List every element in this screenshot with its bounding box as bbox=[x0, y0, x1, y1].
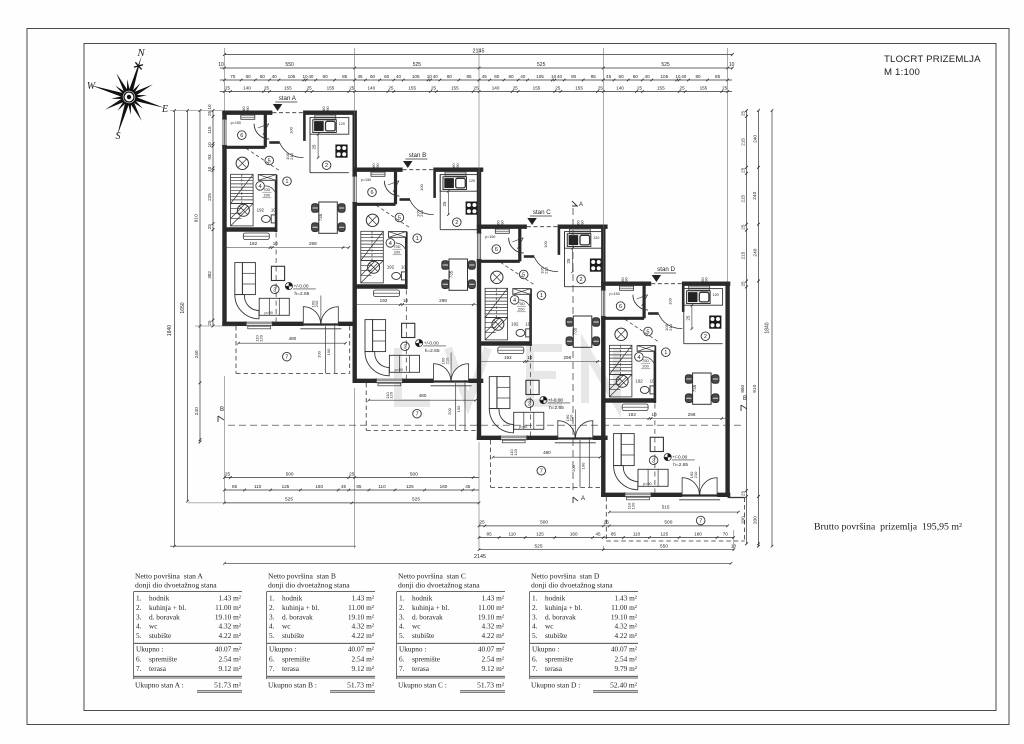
svg-text:60: 60 bbox=[619, 74, 625, 79]
svg-text:9.12 m²: 9.12 m² bbox=[352, 664, 375, 673]
svg-text:200: 200 bbox=[317, 350, 322, 357]
svg-text:155: 155 bbox=[700, 86, 708, 91]
svg-text:h=2.65: h=2.65 bbox=[673, 462, 688, 468]
svg-text:500: 500 bbox=[410, 471, 418, 477]
svg-text:1.43 m²: 1.43 m² bbox=[482, 594, 505, 603]
svg-text:125: 125 bbox=[406, 484, 414, 489]
svg-text:480: 480 bbox=[419, 393, 427, 398]
svg-text:2: 2 bbox=[580, 277, 583, 283]
svg-text:100: 100 bbox=[419, 183, 424, 190]
svg-text:wc: wc bbox=[545, 622, 554, 631]
svg-text:h=2.65: h=2.65 bbox=[425, 348, 440, 354]
svg-text:525: 525 bbox=[412, 497, 420, 503]
svg-text:1.: 1. bbox=[136, 594, 142, 603]
svg-text:25: 25 bbox=[722, 86, 728, 91]
svg-text:225: 225 bbox=[207, 193, 212, 201]
svg-text:120: 120 bbox=[593, 236, 599, 240]
svg-text:190: 190 bbox=[580, 462, 585, 469]
svg-text:2.: 2. bbox=[269, 603, 275, 612]
svg-text:192: 192 bbox=[635, 378, 643, 383]
svg-text:2.54 m²: 2.54 m² bbox=[219, 655, 242, 664]
svg-text:25: 25 bbox=[740, 224, 745, 230]
svg-text:Netto površina stan D: Netto površina stan D bbox=[531, 572, 600, 581]
svg-text:d. boravak: d. boravak bbox=[545, 612, 576, 621]
svg-text:4.32 m²: 4.32 m² bbox=[219, 622, 242, 631]
svg-text:140: 140 bbox=[616, 86, 624, 91]
svg-text:240: 240 bbox=[194, 407, 200, 415]
svg-text:B: B bbox=[743, 396, 747, 402]
svg-text:110: 110 bbox=[254, 484, 262, 489]
svg-text:6.: 6. bbox=[269, 655, 275, 664]
svg-text:2: 2 bbox=[704, 334, 707, 340]
svg-text:40: 40 bbox=[308, 74, 314, 79]
svg-text:298: 298 bbox=[688, 412, 696, 417]
svg-text:9.12 m²: 9.12 m² bbox=[219, 664, 242, 673]
svg-text:60: 60 bbox=[633, 74, 639, 79]
svg-text:45: 45 bbox=[595, 531, 601, 536]
svg-text:5.: 5. bbox=[399, 631, 405, 640]
svg-text:spremište: spremište bbox=[412, 655, 440, 664]
svg-text:A: A bbox=[579, 202, 583, 208]
svg-text:140: 140 bbox=[492, 86, 500, 91]
svg-text:210: 210 bbox=[693, 471, 698, 478]
svg-text:6.: 6. bbox=[532, 655, 538, 664]
svg-text:210: 210 bbox=[444, 357, 449, 364]
svg-text:5: 5 bbox=[268, 159, 271, 165]
svg-text:85: 85 bbox=[466, 74, 472, 79]
svg-text:210: 210 bbox=[668, 323, 673, 330]
svg-text:45: 45 bbox=[341, 484, 347, 489]
svg-text:160: 160 bbox=[694, 531, 702, 536]
svg-text:11.00 m²: 11.00 m² bbox=[478, 603, 505, 612]
svg-text:6: 6 bbox=[240, 133, 243, 139]
svg-text:60: 60 bbox=[508, 74, 514, 79]
svg-text:70: 70 bbox=[723, 531, 729, 536]
svg-text:3.: 3. bbox=[532, 612, 538, 621]
svg-text:stubište: stubište bbox=[282, 631, 304, 640]
svg-text:2.54 m²: 2.54 m² bbox=[615, 655, 638, 664]
svg-text:2.: 2. bbox=[532, 603, 538, 612]
svg-text:80: 80 bbox=[323, 74, 329, 79]
svg-text:120: 120 bbox=[469, 179, 475, 183]
svg-text:70: 70 bbox=[230, 74, 236, 79]
svg-text:10: 10 bbox=[650, 378, 655, 383]
svg-text:2.: 2. bbox=[399, 603, 405, 612]
svg-text:M 1:100: M 1:100 bbox=[884, 67, 920, 78]
svg-text:85: 85 bbox=[342, 74, 348, 79]
svg-text:25: 25 bbox=[312, 144, 317, 149]
svg-text:10: 10 bbox=[207, 142, 212, 148]
svg-text:500: 500 bbox=[664, 520, 672, 526]
svg-text:3.: 3. bbox=[269, 612, 275, 621]
svg-text:500: 500 bbox=[540, 520, 548, 526]
svg-text:70D: 70D bbox=[642, 359, 649, 363]
svg-text:d. boravak: d. boravak bbox=[412, 612, 443, 621]
svg-text:Ukupno :: Ukupno : bbox=[136, 645, 163, 654]
svg-text:terasa: terasa bbox=[412, 664, 430, 673]
svg-text:19.10 m²: 19.10 m² bbox=[215, 612, 242, 621]
svg-text:11.00 m²: 11.00 m² bbox=[611, 603, 638, 612]
svg-text:192: 192 bbox=[257, 207, 265, 212]
svg-text:192: 192 bbox=[628, 412, 636, 417]
svg-text:910: 910 bbox=[752, 384, 758, 392]
svg-text:100: 100 bbox=[667, 297, 672, 304]
svg-text:10: 10 bbox=[675, 74, 681, 79]
svg-text:525: 525 bbox=[534, 544, 542, 550]
svg-text:Ukupno :: Ukupno : bbox=[532, 645, 559, 654]
svg-text:25: 25 bbox=[680, 86, 686, 91]
svg-text:4.: 4. bbox=[136, 622, 142, 631]
svg-text:215: 215 bbox=[740, 251, 745, 259]
svg-text:5: 5 bbox=[398, 216, 401, 222]
svg-text:60: 60 bbox=[384, 74, 390, 79]
svg-text:9.79 m²: 9.79 m² bbox=[615, 664, 638, 673]
svg-text:155: 155 bbox=[575, 86, 583, 91]
svg-text:Ukupno stan D :: Ukupno stan D : bbox=[531, 681, 580, 690]
svg-text:51.73 m²: 51.73 m² bbox=[477, 681, 505, 690]
svg-text:192: 192 bbox=[504, 355, 512, 360]
svg-text:25: 25 bbox=[307, 86, 313, 91]
svg-text:93: 93 bbox=[207, 154, 212, 160]
svg-text:110: 110 bbox=[509, 531, 517, 536]
svg-text:4.32 m²: 4.32 m² bbox=[615, 622, 638, 631]
svg-text:Brutto površina prizemlja 19: Brutto površina prizemlja 195,95 m² bbox=[814, 522, 962, 533]
svg-text:25: 25 bbox=[431, 86, 437, 91]
svg-text:51.73 m²: 51.73 m² bbox=[347, 681, 375, 690]
svg-text:TLOCRT PRIZEMLJA: TLOCRT PRIZEMLJA bbox=[884, 54, 981, 65]
svg-text:190: 190 bbox=[456, 405, 461, 412]
svg-text:45: 45 bbox=[357, 74, 363, 79]
svg-text:kuhinja + bl.: kuhinja + bl. bbox=[545, 603, 582, 612]
svg-text:40.07 m²: 40.07 m² bbox=[348, 645, 375, 654]
svg-text:85: 85 bbox=[611, 531, 617, 536]
svg-text:p=90: p=90 bbox=[395, 368, 403, 372]
svg-text:25: 25 bbox=[264, 86, 270, 91]
svg-text:210: 210 bbox=[544, 266, 549, 273]
svg-text:200: 200 bbox=[394, 251, 400, 255]
svg-text:3.: 3. bbox=[136, 612, 142, 621]
svg-text:4.32 m²: 4.32 m² bbox=[352, 622, 375, 631]
svg-text:25: 25 bbox=[474, 86, 480, 91]
svg-text:382: 382 bbox=[207, 271, 212, 279]
svg-text:192: 192 bbox=[511, 321, 519, 326]
svg-text:210: 210 bbox=[419, 209, 424, 216]
svg-text:40.07 m²: 40.07 m² bbox=[478, 645, 505, 654]
svg-text:210: 210 bbox=[314, 300, 319, 307]
svg-text:Netto površina stan B: Netto površina stan B bbox=[268, 572, 336, 581]
svg-text:2.: 2. bbox=[136, 603, 142, 612]
svg-text:stan C: stan C bbox=[533, 209, 551, 216]
svg-text:525: 525 bbox=[413, 62, 422, 68]
svg-text:stubište: stubište bbox=[149, 631, 171, 640]
svg-text:2145: 2145 bbox=[474, 554, 486, 560]
svg-text:4.: 4. bbox=[399, 622, 405, 631]
svg-text:hodnik: hodnik bbox=[412, 594, 433, 603]
svg-text:2: 2 bbox=[455, 220, 458, 226]
svg-text:terasa: terasa bbox=[545, 664, 563, 673]
svg-text:Ukupno stan C :: Ukupno stan C : bbox=[398, 681, 447, 690]
svg-text:735: 735 bbox=[448, 270, 453, 278]
svg-text:10: 10 bbox=[527, 355, 533, 360]
svg-text:40: 40 bbox=[433, 74, 439, 79]
svg-text:240: 240 bbox=[752, 135, 758, 143]
svg-text:550: 550 bbox=[660, 544, 668, 550]
svg-text:192: 192 bbox=[387, 264, 395, 269]
svg-text:5: 5 bbox=[522, 273, 525, 279]
svg-text:45: 45 bbox=[465, 484, 471, 489]
svg-text:1.43 m²: 1.43 m² bbox=[352, 594, 375, 603]
svg-text:45: 45 bbox=[606, 74, 612, 79]
svg-text:9.12 m²: 9.12 m² bbox=[482, 664, 505, 673]
svg-text:7.: 7. bbox=[399, 664, 405, 673]
svg-text:215: 215 bbox=[740, 138, 745, 146]
svg-text:1: 1 bbox=[416, 236, 419, 242]
svg-text:70D: 70D bbox=[518, 302, 525, 306]
svg-text:Ukupno :: Ukupno : bbox=[269, 645, 296, 654]
svg-text:h=2.65: h=2.65 bbox=[295, 291, 310, 297]
svg-text:10: 10 bbox=[551, 74, 557, 79]
svg-text:19.10 m²: 19.10 m² bbox=[348, 612, 375, 621]
svg-text:4.: 4. bbox=[532, 622, 538, 631]
svg-text:215: 215 bbox=[740, 194, 745, 202]
svg-text:298: 298 bbox=[563, 355, 571, 360]
svg-text:19.10 m²: 19.10 m² bbox=[478, 612, 505, 621]
svg-text:200: 200 bbox=[752, 516, 758, 524]
svg-text:A: A bbox=[581, 496, 585, 502]
svg-text:S: S bbox=[116, 131, 121, 142]
svg-text:6: 6 bbox=[619, 304, 622, 310]
svg-text:525: 525 bbox=[537, 62, 546, 68]
svg-text:stan A: stan A bbox=[279, 95, 297, 102]
svg-text:25: 25 bbox=[207, 320, 212, 326]
svg-text:stubište: stubište bbox=[412, 631, 434, 640]
svg-text:25: 25 bbox=[566, 258, 571, 263]
svg-text:85: 85 bbox=[487, 531, 493, 536]
svg-text:120: 120 bbox=[631, 502, 636, 509]
svg-text:200: 200 bbox=[264, 194, 270, 198]
svg-text:192: 192 bbox=[380, 298, 388, 303]
svg-text:25: 25 bbox=[225, 86, 231, 91]
svg-text:4.22 m²: 4.22 m² bbox=[219, 631, 242, 640]
svg-text:d. boravak: d. boravak bbox=[282, 612, 313, 621]
svg-text:p=90: p=90 bbox=[519, 425, 527, 429]
svg-text:4: 4 bbox=[389, 241, 392, 247]
svg-text:2.54 m²: 2.54 m² bbox=[352, 655, 375, 664]
svg-text:10: 10 bbox=[271, 207, 276, 212]
svg-text:2145: 2145 bbox=[473, 49, 485, 55]
svg-text:4: 4 bbox=[513, 298, 516, 304]
svg-text:1: 1 bbox=[540, 293, 543, 299]
svg-text:10: 10 bbox=[273, 241, 279, 246]
svg-text:1840: 1840 bbox=[765, 322, 771, 333]
svg-text:10: 10 bbox=[401, 264, 406, 269]
svg-text:25: 25 bbox=[555, 86, 561, 91]
svg-text:25: 25 bbox=[740, 110, 745, 116]
svg-text:p=90: p=90 bbox=[643, 482, 651, 486]
svg-text:105: 105 bbox=[536, 74, 544, 79]
svg-text:298: 298 bbox=[439, 298, 447, 303]
svg-text:60: 60 bbox=[246, 74, 252, 79]
svg-text:40: 40 bbox=[557, 74, 563, 79]
svg-text:Ukupno stan A :: Ukupno stan A : bbox=[135, 681, 184, 690]
svg-text:25: 25 bbox=[740, 281, 745, 287]
svg-text:298: 298 bbox=[309, 241, 317, 246]
svg-text:1.: 1. bbox=[399, 594, 405, 603]
svg-text:1.: 1. bbox=[532, 594, 538, 603]
svg-text:10: 10 bbox=[403, 298, 409, 303]
svg-text:240: 240 bbox=[752, 191, 758, 199]
svg-text:200: 200 bbox=[571, 464, 576, 471]
svg-text:7: 7 bbox=[540, 469, 543, 475]
svg-text:10: 10 bbox=[652, 412, 658, 417]
svg-text:525: 525 bbox=[285, 497, 293, 503]
svg-text:10: 10 bbox=[302, 74, 308, 79]
svg-text:kuhinja + bl.: kuhinja + bl. bbox=[149, 603, 186, 612]
svg-text:60: 60 bbox=[370, 74, 376, 79]
svg-text:125: 125 bbox=[282, 484, 290, 489]
svg-text:40: 40 bbox=[681, 74, 687, 79]
svg-text:155: 155 bbox=[657, 86, 665, 91]
svg-text:11.00 m²: 11.00 m² bbox=[215, 603, 242, 612]
svg-text:1.43 m²: 1.43 m² bbox=[219, 594, 242, 603]
svg-text:10: 10 bbox=[731, 544, 737, 550]
svg-text:E: E bbox=[161, 104, 168, 115]
svg-text:6.: 6. bbox=[399, 655, 405, 664]
svg-text:5.: 5. bbox=[532, 631, 538, 640]
svg-text:stan B: stan B bbox=[409, 152, 427, 159]
svg-text:4.22 m²: 4.22 m² bbox=[352, 631, 375, 640]
svg-text:4.22 m²: 4.22 m² bbox=[615, 631, 638, 640]
svg-text:60: 60 bbox=[494, 74, 500, 79]
svg-text:120: 120 bbox=[339, 122, 345, 126]
svg-text:500: 500 bbox=[286, 471, 294, 477]
svg-text:25: 25 bbox=[388, 86, 394, 91]
svg-text:105: 105 bbox=[660, 74, 668, 79]
svg-text:40: 40 bbox=[396, 74, 402, 79]
svg-text:85: 85 bbox=[591, 74, 597, 79]
svg-text:10: 10 bbox=[525, 321, 530, 326]
svg-text:donji dio dvoetažnog stana: donji dio dvoetažnog stana bbox=[398, 581, 480, 590]
svg-text:85: 85 bbox=[232, 484, 238, 489]
svg-text:200: 200 bbox=[740, 516, 745, 524]
svg-text:7.: 7. bbox=[532, 664, 538, 673]
svg-text:110: 110 bbox=[633, 531, 641, 536]
svg-text:25: 25 bbox=[740, 167, 745, 173]
svg-text:19.10 m²: 19.10 m² bbox=[611, 612, 638, 621]
svg-text:735: 735 bbox=[318, 213, 323, 221]
svg-text:7: 7 bbox=[285, 355, 288, 361]
svg-text:40.07 m²: 40.07 m² bbox=[215, 645, 242, 654]
svg-text:1650: 1650 bbox=[180, 302, 186, 313]
svg-text:terasa: terasa bbox=[149, 664, 167, 673]
svg-text:70D: 70D bbox=[394, 245, 401, 249]
svg-text:525: 525 bbox=[661, 62, 670, 68]
svg-text:donji dio dvoetažnog stana: donji dio dvoetažnog stana bbox=[135, 581, 217, 590]
svg-text:120: 120 bbox=[513, 448, 518, 455]
svg-text:25: 25 bbox=[637, 86, 643, 91]
svg-text:spremište: spremište bbox=[149, 655, 177, 664]
svg-text:stubište: stubište bbox=[545, 631, 567, 640]
svg-text:155: 155 bbox=[533, 86, 541, 91]
svg-text:wc: wc bbox=[412, 622, 421, 631]
svg-text:160: 160 bbox=[315, 484, 323, 489]
svg-text:donji dio dvoetažnog stana: donji dio dvoetažnog stana bbox=[268, 581, 350, 590]
svg-text:45: 45 bbox=[482, 74, 488, 79]
svg-text:donji dio dvoetažnog stana: donji dio dvoetažnog stana bbox=[531, 581, 613, 590]
svg-text:5: 5 bbox=[646, 330, 649, 336]
svg-text:125: 125 bbox=[536, 531, 544, 536]
svg-text:240: 240 bbox=[752, 248, 758, 256]
svg-text:550: 550 bbox=[285, 62, 294, 68]
svg-text:3.: 3. bbox=[399, 612, 405, 621]
svg-text:860: 860 bbox=[740, 384, 745, 392]
svg-text:Netto površina stan C: Netto površina stan C bbox=[398, 572, 466, 581]
svg-text:7: 7 bbox=[415, 412, 418, 418]
svg-text:2: 2 bbox=[325, 163, 328, 169]
svg-text:200: 200 bbox=[642, 365, 648, 369]
svg-text:1: 1 bbox=[285, 179, 288, 185]
svg-text:7.: 7. bbox=[136, 664, 142, 673]
svg-text:6: 6 bbox=[495, 247, 498, 253]
svg-text:100: 100 bbox=[289, 126, 294, 133]
svg-text:160: 160 bbox=[440, 484, 448, 489]
svg-text:25: 25 bbox=[598, 86, 604, 91]
svg-text:25: 25 bbox=[442, 201, 447, 206]
svg-text:52.40 m²: 52.40 m² bbox=[610, 681, 638, 690]
svg-text:200: 200 bbox=[447, 407, 452, 414]
svg-text:110: 110 bbox=[378, 484, 386, 489]
svg-text:10: 10 bbox=[207, 166, 212, 172]
svg-text:140: 140 bbox=[367, 86, 375, 91]
svg-text:1.: 1. bbox=[269, 594, 275, 603]
svg-text:85: 85 bbox=[356, 484, 362, 489]
svg-text:2.54 m²: 2.54 m² bbox=[482, 655, 505, 664]
svg-text:wc: wc bbox=[149, 622, 158, 631]
svg-text:40: 40 bbox=[645, 74, 651, 79]
svg-text:515: 515 bbox=[662, 505, 670, 510]
svg-text:51.73 m²: 51.73 m² bbox=[214, 681, 242, 690]
svg-text:N: N bbox=[136, 47, 145, 59]
svg-text:80: 80 bbox=[447, 74, 453, 79]
svg-text:kuhinja + bl.: kuhinja + bl. bbox=[282, 603, 319, 612]
svg-text:155: 155 bbox=[284, 86, 292, 91]
svg-text:hodnik: hodnik bbox=[282, 594, 303, 603]
svg-text:7.: 7. bbox=[269, 664, 275, 673]
svg-text:120: 120 bbox=[713, 293, 719, 297]
svg-text:120: 120 bbox=[389, 391, 394, 398]
svg-text:735: 735 bbox=[692, 384, 697, 392]
svg-text:25: 25 bbox=[207, 110, 212, 116]
svg-text:B: B bbox=[220, 407, 224, 413]
svg-text:210: 210 bbox=[289, 152, 294, 159]
svg-text:p=90: p=90 bbox=[264, 311, 272, 315]
svg-text:25: 25 bbox=[349, 86, 355, 91]
svg-text:140: 140 bbox=[243, 86, 251, 91]
svg-text:200: 200 bbox=[518, 308, 524, 312]
svg-text:11.00 m²: 11.00 m² bbox=[348, 603, 375, 612]
svg-text:120: 120 bbox=[259, 334, 264, 341]
svg-text:6: 6 bbox=[370, 190, 373, 196]
svg-text:5.: 5. bbox=[136, 631, 142, 640]
svg-text:p=150: p=150 bbox=[485, 235, 495, 239]
svg-text:10: 10 bbox=[207, 104, 212, 110]
svg-text:Ukupno :: Ukupno : bbox=[399, 645, 426, 654]
svg-text:125: 125 bbox=[660, 531, 668, 536]
svg-text:kuhinja + bl.: kuhinja + bl. bbox=[412, 603, 449, 612]
svg-text:25: 25 bbox=[207, 224, 212, 230]
svg-text:40: 40 bbox=[272, 74, 278, 79]
svg-text:40.07 m²: 40.07 m² bbox=[611, 645, 638, 654]
